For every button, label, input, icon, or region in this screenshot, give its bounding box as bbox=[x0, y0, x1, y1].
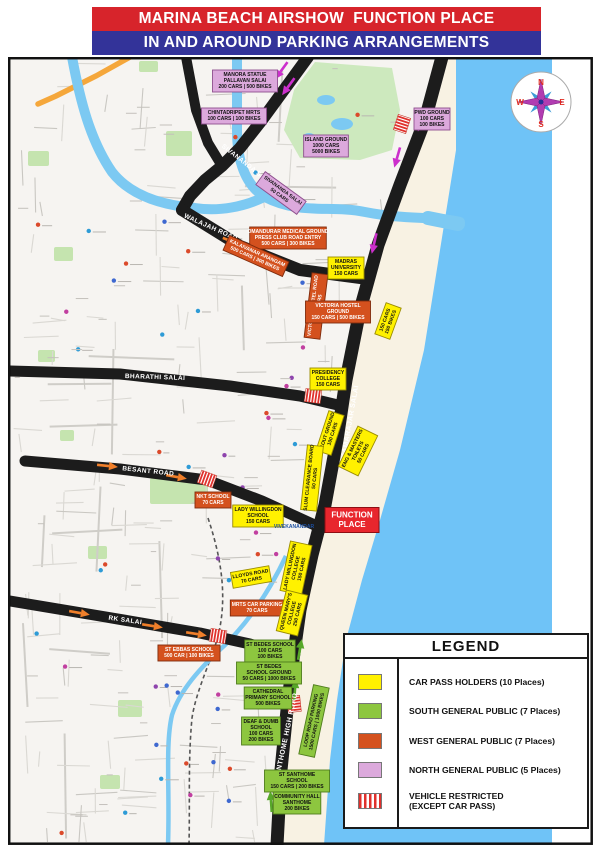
restricted-segment bbox=[304, 388, 322, 403]
parking-label-line: 100 BIKES bbox=[419, 122, 445, 128]
legend-swatch-west bbox=[358, 733, 382, 749]
parking-label-line: 200 BIKES bbox=[284, 806, 310, 812]
parking-label-south: ST BEDES SCHOOL100 CARS100 BIKES bbox=[245, 640, 296, 662]
parking-label-line: 70 CARS bbox=[246, 608, 268, 614]
parking-label-line: 200 BIKES bbox=[248, 737, 274, 743]
parking-label-line: 200 CARS | 500 BIKES bbox=[218, 84, 272, 90]
parking-label-north: ISLAND GROUND1000 CARS5000 BIKES bbox=[304, 135, 349, 157]
compass-n-label: N bbox=[538, 78, 544, 87]
parking-label-line: 100 BIKES bbox=[257, 654, 283, 660]
parking-label-west: OMANDURAR MEDICAL GROUNDPRESS CLUB ROAD … bbox=[247, 227, 328, 249]
restricted-segment bbox=[209, 628, 227, 643]
compass-s-label: S bbox=[538, 120, 544, 129]
parking-label-west: MRTS CAR PARKING70 CARS bbox=[230, 600, 283, 616]
title-line-2: IN AND AROUND PARKING ARRANGEMENTS bbox=[92, 31, 541, 55]
parking-label-west: VICTORIA HOSTELGROUND150 CARS | 500 BIKE… bbox=[306, 301, 371, 323]
parking-label-north: PWD GROUND100 CARS100 BIKES bbox=[414, 108, 450, 130]
parking-label-west: ST EBBAS SCHOOL500 CAR | 100 BIKES bbox=[158, 645, 220, 661]
compass-rose: NESW bbox=[511, 72, 571, 132]
parking-label-car_pass: MADRASUNIVERSITY150 CARS bbox=[328, 257, 364, 279]
parking-label-line: 70 CARS bbox=[202, 500, 224, 506]
legend-swatch-north bbox=[358, 762, 382, 778]
legend-body: CAR PASS HOLDERS (10 Places)SOUTH GENERA… bbox=[345, 659, 587, 827]
compass-e-label: E bbox=[559, 98, 565, 107]
parking-label-line: 150 CARS | 500 BIKES bbox=[311, 315, 365, 321]
legend-item-north: NORTH GENERAL PUBLIC (5 Places) bbox=[345, 762, 587, 778]
legend-item-label: VEHICLE RESTRICTED(EXCEPT CAR PASS) bbox=[409, 791, 504, 812]
legend-item-car_pass: CAR PASS HOLDERS (10 Places) bbox=[345, 674, 587, 690]
function-place-label: FUNCTION bbox=[331, 511, 373, 520]
parking-label-south: DEAF & DUMBSCHOOL100 CARS200 BIKES bbox=[242, 717, 281, 745]
legend-item-restricted: VEHICLE RESTRICTED(EXCEPT CAR PASS) bbox=[345, 791, 587, 812]
parking-label-north: CHINTADRIPET MRTS100 CARS | 100 BIKES bbox=[202, 108, 267, 124]
function-place-label: PLACE bbox=[338, 520, 366, 529]
legend-label-line: WEST GENERAL PUBLIC (7 Places) bbox=[409, 736, 555, 746]
parking-label-line: 150 CARS bbox=[334, 271, 359, 277]
parking-label-line: 100 CARS | 100 BIKES bbox=[207, 116, 261, 122]
title-line-1: MARINA BEACH AIRSHOW FUNCTION PLACE bbox=[92, 7, 541, 31]
parking-label-line: 50 CARS | 1000 BIKES bbox=[242, 676, 296, 682]
legend-title: LEGEND bbox=[345, 635, 587, 659]
parking-label-south: CATHEDRALPRIMARY SCHOOL500 BIKES bbox=[244, 687, 292, 709]
legend-item-south: SOUTH GENERAL PUBLIC (7 Places) bbox=[345, 703, 587, 719]
function-place-marker: FUNCTIONPLACE bbox=[325, 508, 379, 533]
legend-label-line: CAR PASS HOLDERS (10 Places) bbox=[409, 677, 544, 687]
parking-label-car_pass: PRESIDENCYCOLLEGE150 CARS bbox=[310, 368, 346, 390]
legend-item-label: CAR PASS HOLDERS (10 Places) bbox=[409, 677, 544, 687]
legend-label-line: VEHICLE RESTRICTED bbox=[409, 791, 504, 801]
parking-label-line: 500 BIKES bbox=[255, 701, 281, 707]
parking-label-north: MANORA STATUEPALLAVAN SALAI200 CARS | 50… bbox=[213, 70, 278, 92]
legend-label-line: (EXCEPT CAR PASS) bbox=[409, 801, 504, 811]
legend-label-line: NORTH GENERAL PUBLIC (5 Places) bbox=[409, 765, 561, 775]
parking-label-line: 5000 BIKES bbox=[312, 149, 340, 155]
legend-box: LEGEND CAR PASS HOLDERS (10 Places)SOUTH… bbox=[343, 633, 589, 829]
poi-label: VIVEKANANDAR bbox=[274, 524, 315, 530]
parking-label-west: NKT SCHOOL70 CARS bbox=[195, 492, 231, 508]
legend-item-label: WEST GENERAL PUBLIC (7 Places) bbox=[409, 736, 555, 746]
parking-label-south: ST SANTHOMESCHOOL150 CARS | 200 BIKES bbox=[265, 770, 330, 792]
parking-label-south: ST BEDESSCHOOL GROUND50 CARS | 1000 BIKE… bbox=[237, 662, 302, 684]
legend-swatch-south bbox=[358, 703, 382, 719]
legend-label-line: SOUTH GENERAL PUBLIC (7 Places) bbox=[409, 706, 560, 716]
legend-swatch-restricted bbox=[358, 793, 382, 809]
legend-item-label: NORTH GENERAL PUBLIC (5 Places) bbox=[409, 765, 561, 775]
parking-label-south: COMMUNITY HALLSANTHOME200 BIKES bbox=[273, 792, 321, 814]
legend-swatch-car_pass bbox=[358, 674, 382, 690]
compass-w-label: W bbox=[516, 98, 524, 107]
parking-label-line: 500 CAR | 100 BIKES bbox=[164, 653, 214, 659]
legend-item-west: WEST GENERAL PUBLIC (7 Places) bbox=[345, 733, 587, 749]
parking-label-line: 150 CARS | 200 BIKES bbox=[270, 784, 324, 790]
parking-label-line: 500 CARS | 300 BIKES bbox=[261, 241, 315, 247]
legend-item-label: SOUTH GENERAL PUBLIC (7 Places) bbox=[409, 706, 560, 716]
parking-label-line: 150 CARS bbox=[316, 382, 341, 388]
parking-label-line: 150 CARS bbox=[246, 519, 271, 525]
page: MARINA BEACH AIRSHOW FUNCTION PLACE IN A… bbox=[0, 0, 600, 850]
